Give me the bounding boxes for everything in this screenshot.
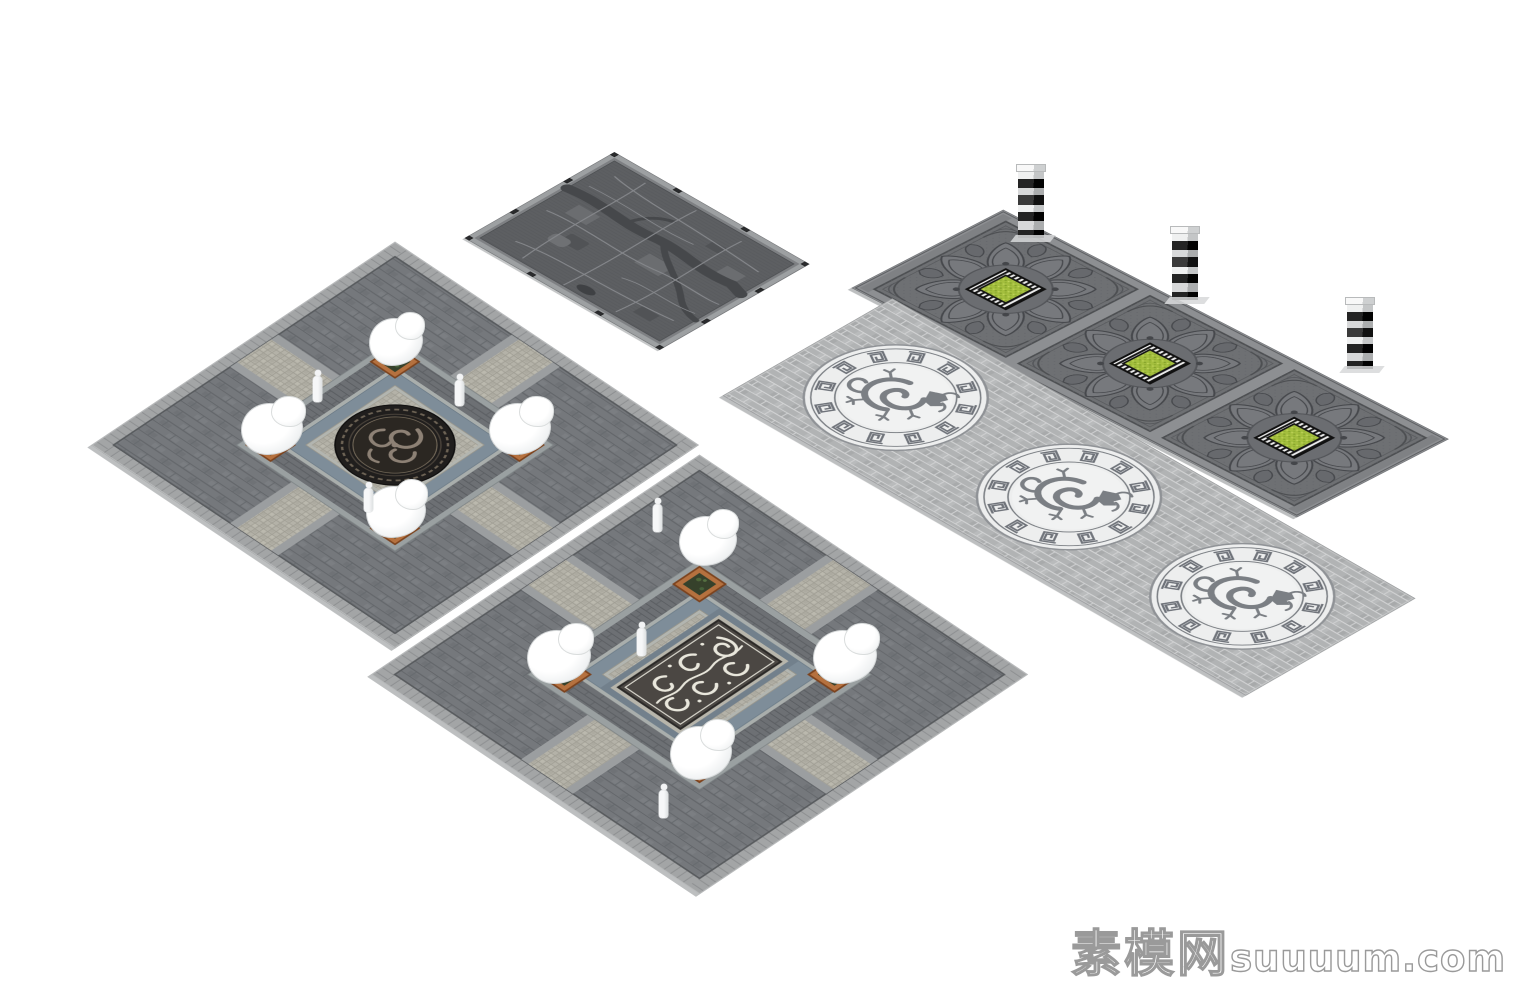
watermark-latin: suuuum.com xyxy=(1230,937,1506,980)
column-cap xyxy=(1345,297,1375,305)
human-figure xyxy=(364,488,373,512)
watermark-cjk: 素模网 xyxy=(1071,925,1230,983)
striped-totem-column xyxy=(1018,164,1044,238)
watermark: 素模网suuuum.com xyxy=(1071,914,1506,986)
carved-map-relief-panel xyxy=(464,152,809,350)
column-shadow xyxy=(1010,235,1055,242)
column-shadow xyxy=(1164,297,1209,304)
human-figure xyxy=(653,504,662,532)
striped-totem-column xyxy=(1172,226,1198,300)
column-shadow xyxy=(1339,366,1384,373)
striped-totem-column xyxy=(1347,297,1373,369)
human-figure xyxy=(313,376,322,402)
human-figure xyxy=(637,628,646,656)
column-cap xyxy=(1170,226,1200,234)
human-figure xyxy=(659,790,668,818)
human-figure xyxy=(455,380,464,406)
column-cap xyxy=(1016,164,1046,172)
